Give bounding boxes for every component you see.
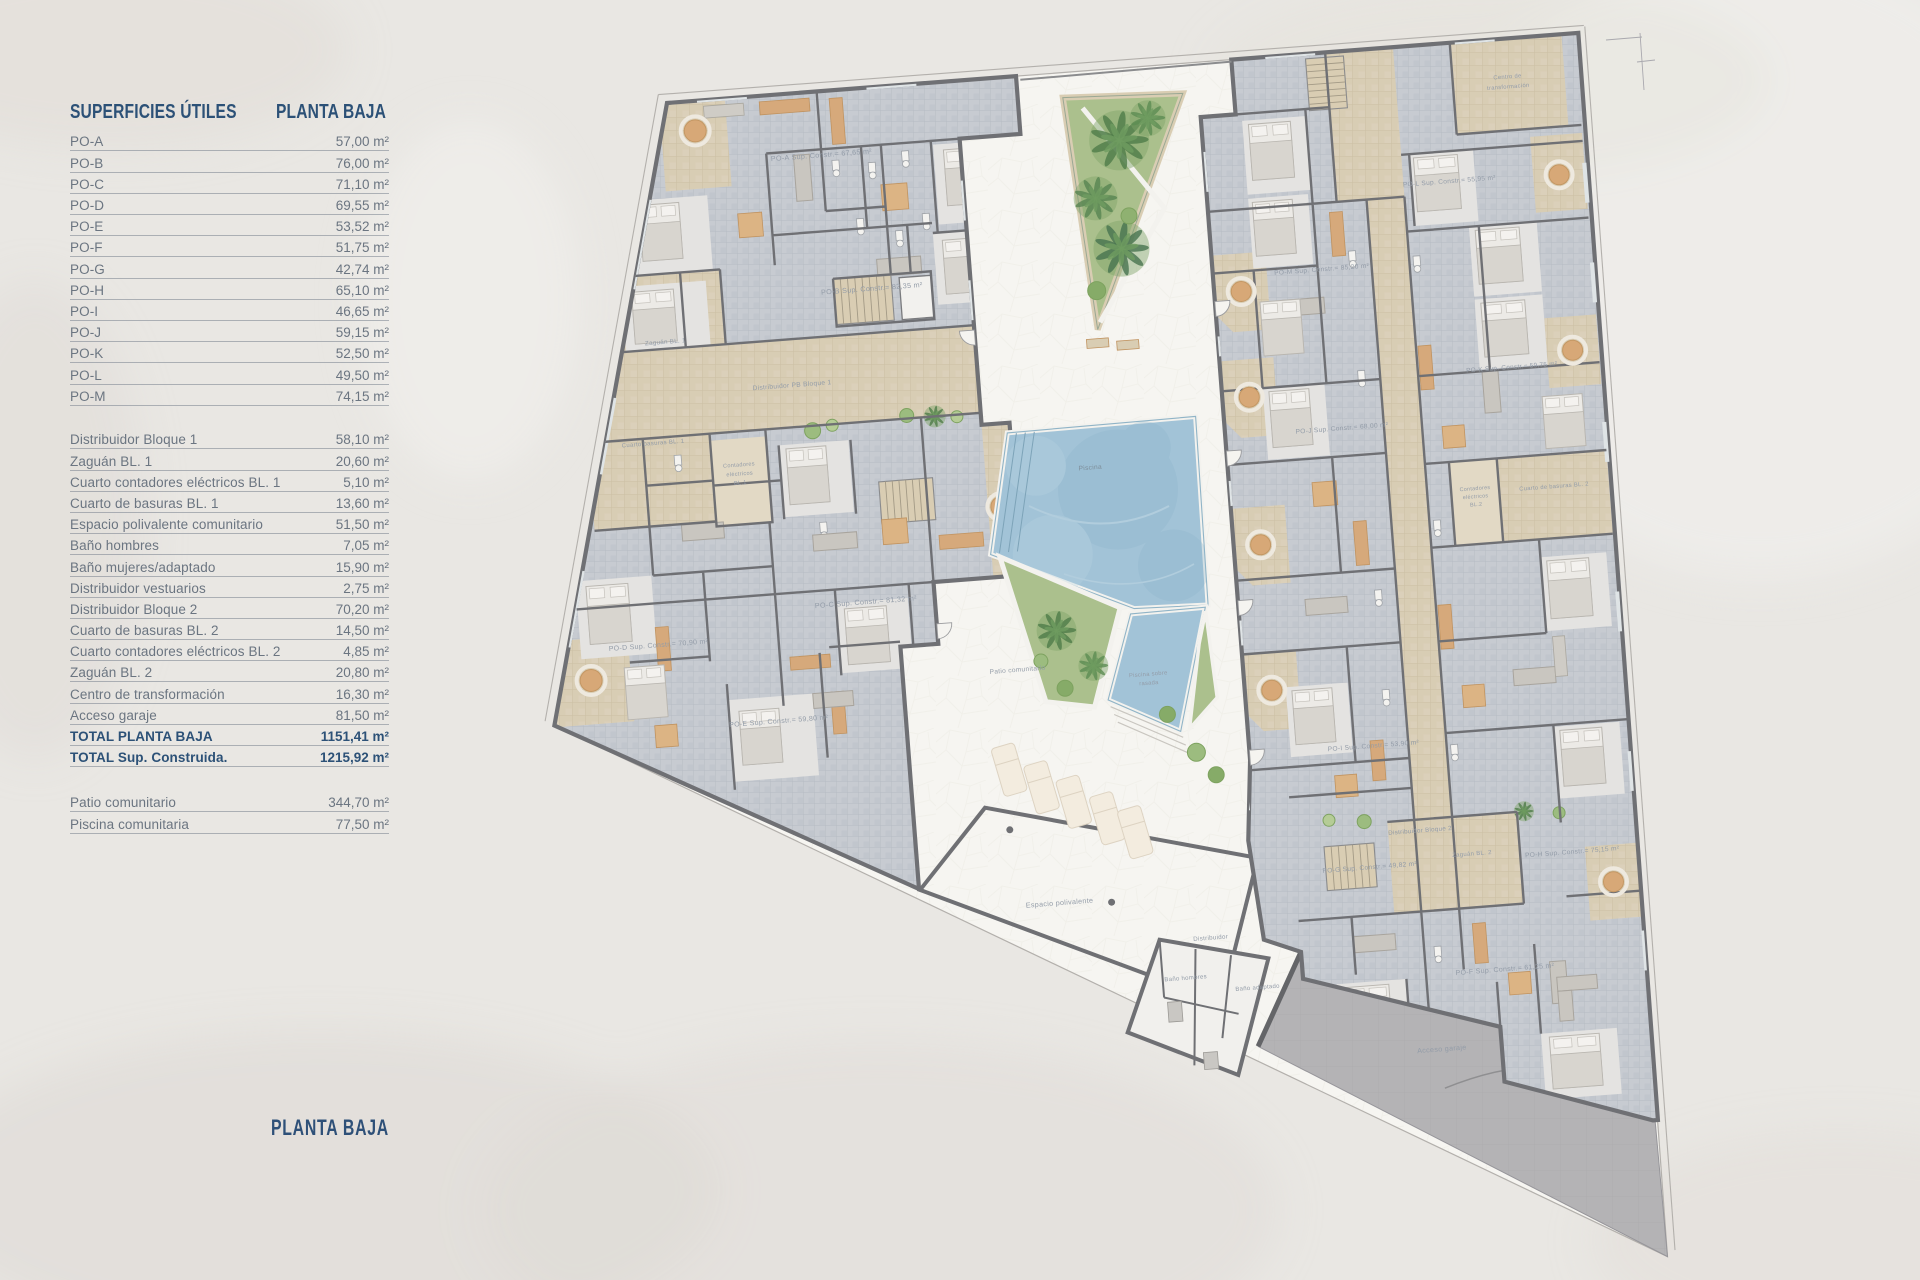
svg-text:BL.2: BL.2 <box>1470 502 1483 509</box>
svg-text:BL.1: BL.1 <box>734 480 747 487</box>
